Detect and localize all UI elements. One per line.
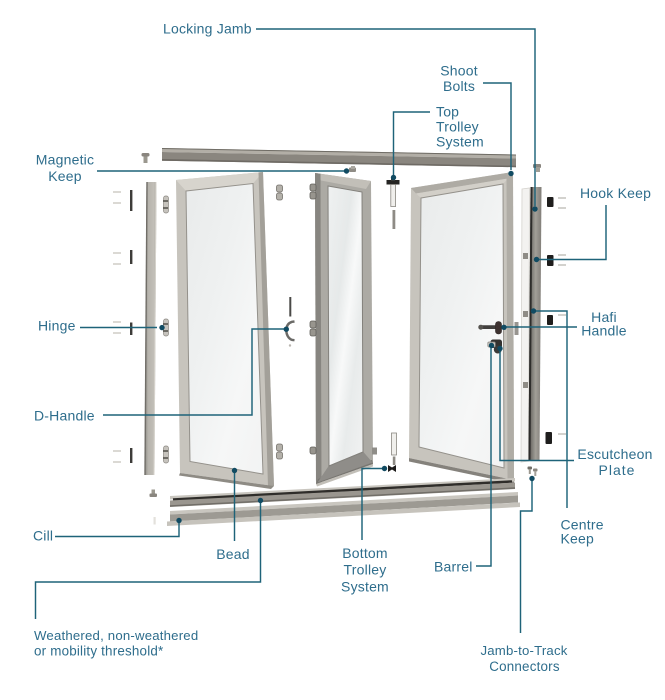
- svg-text:Jamb-to-Track: Jamb-to-Track: [480, 643, 567, 658]
- svg-text:Shoot: Shoot: [440, 63, 478, 79]
- svg-text:Bolts: Bolts: [443, 78, 475, 94]
- svg-text:Trolley: Trolley: [436, 119, 479, 135]
- svg-text:System: System: [436, 134, 484, 150]
- svg-text:Keep: Keep: [48, 168, 82, 184]
- svg-text:or mobility threshold*: or mobility threshold*: [34, 644, 163, 659]
- svg-text:Locking Jamb: Locking Jamb: [163, 21, 252, 37]
- svg-text:Plate: Plate: [599, 462, 636, 478]
- svg-text:Weathered, non-weathered: Weathered, non-weathered: [34, 628, 198, 643]
- svg-text:Bead: Bead: [216, 546, 250, 562]
- svg-text:Trolley: Trolley: [344, 562, 387, 578]
- svg-text:Keep: Keep: [561, 531, 595, 547]
- svg-text:System: System: [341, 579, 389, 595]
- svg-text:Connectors: Connectors: [489, 659, 560, 674]
- svg-text:D-Handle: D-Handle: [34, 408, 95, 424]
- svg-text:Escutcheon: Escutcheon: [577, 446, 652, 462]
- svg-text:Magnetic: Magnetic: [36, 152, 94, 168]
- svg-text:Barrel: Barrel: [434, 559, 473, 575]
- svg-text:Hook Keep: Hook Keep: [580, 185, 651, 201]
- svg-text:Bottom: Bottom: [342, 545, 388, 561]
- svg-text:Hinge: Hinge: [38, 318, 76, 334]
- svg-text:Top: Top: [436, 104, 459, 120]
- svg-text:Cill: Cill: [33, 528, 53, 544]
- svg-text:Handle: Handle: [581, 323, 627, 339]
